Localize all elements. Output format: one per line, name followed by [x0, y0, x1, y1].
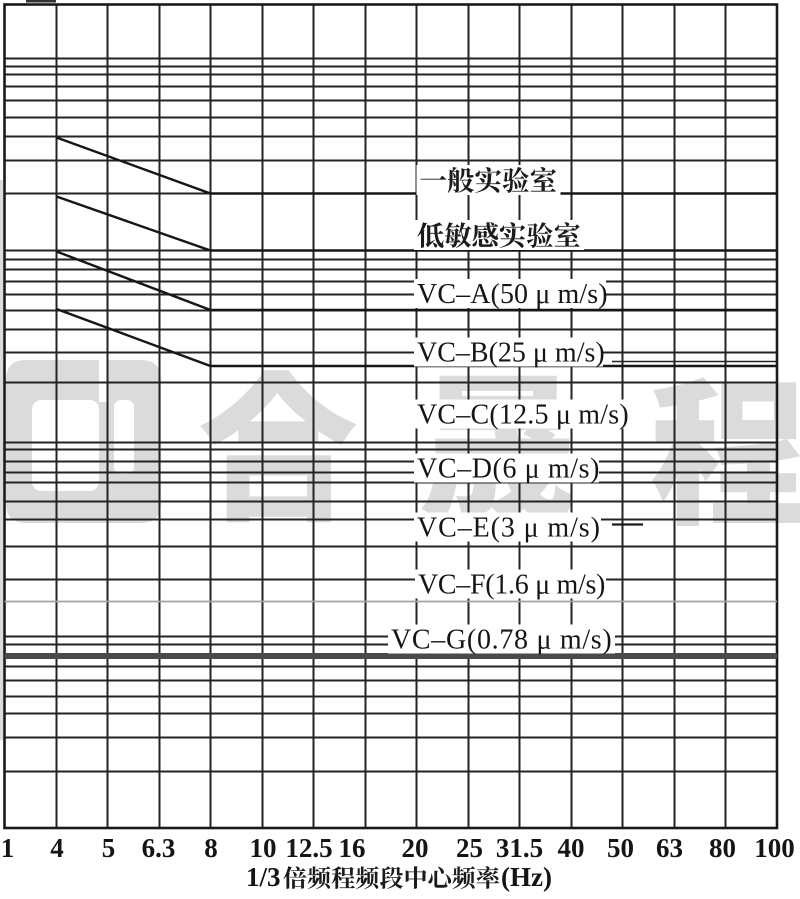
svg-text:VC–F(1.6 μ m/s): VC–F(1.6 μ m/s): [418, 570, 605, 601]
svg-text:31.5: 31.5: [496, 833, 543, 863]
svg-text:50: 50: [607, 833, 634, 863]
svg-text:25: 25: [456, 833, 483, 863]
svg-text:100: 100: [754, 833, 795, 863]
svg-text:80: 80: [709, 833, 736, 863]
svg-text:63: 63: [656, 833, 683, 863]
svg-text:6.3: 6.3: [142, 833, 176, 863]
svg-text:20: 20: [402, 833, 429, 863]
svg-text:8: 8: [204, 833, 218, 863]
svg-text:4: 4: [50, 833, 64, 863]
svg-text:40: 40: [558, 833, 585, 863]
svg-text:16: 16: [339, 833, 366, 863]
svg-text:1: 1: [1, 833, 15, 863]
svg-text:5: 5: [102, 833, 116, 863]
svg-text:12.5: 12.5: [285, 833, 332, 863]
svg-text:(Hz): (Hz): [501, 862, 552, 892]
svg-text:VC–E(3 μ m/s): VC–E(3 μ m/s): [417, 513, 601, 544]
svg-text:VC–B(25 μ m/s): VC–B(25 μ m/s): [417, 338, 605, 369]
svg-text:VC–A(50 μ m/s): VC–A(50 μ m/s): [417, 279, 608, 310]
svg-text:VC–D(6 μ m/s): VC–D(6 μ m/s): [417, 454, 600, 485]
svg-text:VC–C(12.5 μ m/s): VC–C(12.5 μ m/s): [417, 400, 629, 431]
svg-text:10: 10: [250, 833, 277, 863]
svg-text:1/3: 1/3: [246, 862, 281, 892]
svg-text:VC–G(0.78 μ m/s): VC–G(0.78 μ m/s): [391, 625, 612, 656]
